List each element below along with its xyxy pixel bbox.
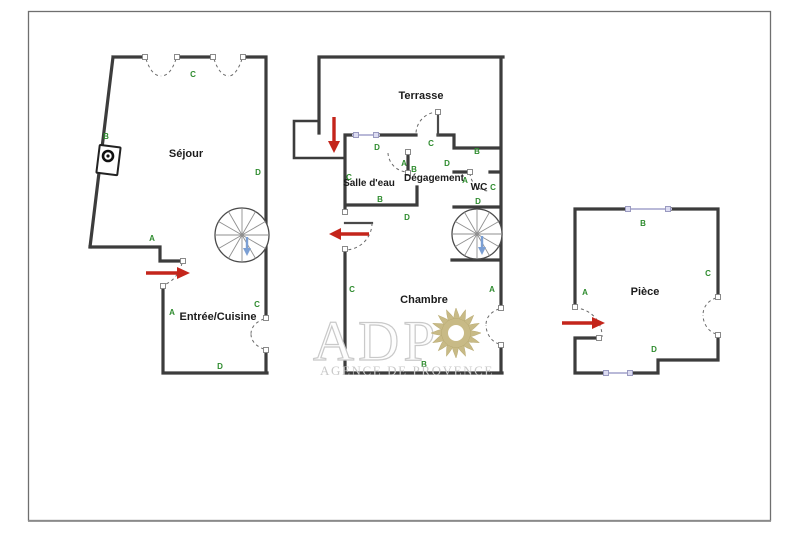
wall-letter: A	[462, 176, 468, 185]
casement-window-arcs-chambre	[486, 309, 499, 344]
wall-letter: D	[475, 197, 481, 206]
room-label-sejour: Séjour	[169, 148, 204, 160]
wall-letter: B	[377, 195, 383, 204]
wall-letter: D	[444, 159, 450, 168]
sun-logo-icon	[431, 308, 481, 358]
red-entry-arrow-chambre	[329, 228, 369, 240]
wall-letter: B	[474, 147, 480, 156]
room-label-entree-cuisine: Entrée/Cuisine	[179, 311, 256, 323]
wall-letter: C	[349, 285, 355, 294]
wall-letter: C	[490, 183, 496, 192]
floor-plan-drawing: Séjour Entrée/Cuisine C B D A A C D	[0, 0, 799, 533]
wall-letter: A	[149, 234, 155, 243]
wall-letter: B	[103, 132, 109, 141]
tagline-text: AGENCE DE PROVENCE	[320, 363, 494, 378]
wall-letter: C	[254, 300, 260, 309]
wall-letter: B	[640, 219, 646, 228]
red-entry-arrow-right-unit	[562, 317, 605, 329]
wall-letter: A	[582, 288, 588, 297]
wall-letter: B	[411, 165, 417, 174]
floor-plan-page: Séjour Entrée/Cuisine C B D A A C D	[0, 0, 799, 533]
room-label-terrasse: Terrasse	[398, 90, 443, 102]
wall-letter: C	[190, 70, 196, 79]
red-entry-arrow-left-unit	[146, 267, 190, 279]
wall-fixture	[96, 145, 120, 175]
wall-letter: A	[169, 308, 175, 317]
wall-letter: D	[374, 143, 380, 152]
page-border-frame	[29, 12, 771, 521]
wall-letter: D	[404, 213, 410, 222]
wall-letter: A	[489, 285, 495, 294]
red-entry-arrow-terrasse	[328, 117, 340, 153]
room-label-chambre: Chambre	[400, 294, 448, 306]
wall-letter: D	[255, 168, 261, 177]
room-label-degagement: Dégagement	[404, 173, 465, 184]
wall-letter: C	[346, 173, 352, 182]
room-label-piece: Pièce	[631, 286, 660, 298]
wall-letter: A	[401, 159, 407, 168]
spiral-staircase-left	[215, 208, 269, 262]
spiral-staircase-middle	[452, 209, 502, 259]
casement-window-arcs-right	[703, 298, 716, 334]
unit-left: Séjour Entrée/Cuisine C B D A A C D	[90, 55, 269, 374]
casement-window-arcs-right	[251, 319, 264, 349]
watermark: ADP AGENCE DE	[313, 308, 494, 378]
wall-letter: C	[705, 269, 711, 278]
room-label-wc: WC	[471, 182, 488, 193]
unit-right: Pièce B A C D	[562, 207, 721, 376]
wall-letter: C	[428, 139, 434, 148]
wall-letter: D	[217, 362, 223, 371]
wall-letter: D	[651, 345, 657, 354]
